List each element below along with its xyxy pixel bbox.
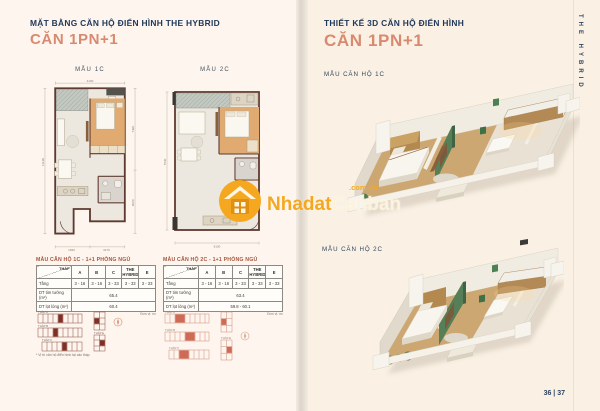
right-page-title: THIẾT KẾ 3D CĂN HỘ ĐIỂN HÌNH [324, 18, 464, 28]
cell-floor: 3 - 16 [199, 279, 216, 289]
plan2-kitchen-top [231, 93, 258, 105]
svg-text:4100: 4100 [87, 79, 94, 83]
floor-plan-1c: 4100 11190 7420 2020 1520 4170 [40, 78, 140, 252]
svg-text:THÁP C: THÁP C [42, 338, 52, 342]
col-header-c: C [232, 266, 249, 279]
table-row: DT tim tường (m²) 65.4 [37, 289, 156, 302]
svg-text:THÁP B: THÁP B [38, 324, 48, 328]
keyplan-note: * Vị trí căn hộ điển hình tại các tháp [36, 353, 90, 357]
cell-floor: 3 - 33 [122, 279, 139, 289]
col-header-a: A [72, 266, 89, 279]
col-header-b: B [215, 266, 232, 279]
watermark-brand-light: Canban [331, 194, 401, 215]
table2-block: MẪU CĂN HỘ 2C - 1+1 PHÒNG NGỦ THÁP A B C… [163, 257, 283, 316]
table-row: DT tim tường (m²) 63.4 [164, 289, 283, 302]
render-3d-2c [352, 234, 564, 396]
svg-text:THÁP E: THÁP E [94, 331, 104, 335]
watermark-house-icon [218, 179, 262, 223]
row-label-gross: DT tim tường (m²) [164, 289, 199, 302]
render2-warm-light [494, 286, 534, 302]
table-header-row: THÁP A B C THE HYBRID E [37, 266, 156, 279]
svg-text:THÁP E: THÁP E [221, 336, 231, 340]
col-header-e: E [266, 266, 283, 279]
row-label-gross: DT tim tường (m²) [37, 289, 72, 302]
svg-text:11190: 11190 [41, 158, 45, 166]
side-vertical-text: THE HYBRID [577, 14, 583, 124]
col-header-a: A [199, 266, 216, 279]
compass-icon [114, 318, 122, 326]
table1-block: MẪU CĂN HỘ 1C - 1+1 PHÒNG NGỦ THÁP A B C… [36, 257, 156, 316]
right-page-subtitle: CĂN 1PN+1 [324, 31, 423, 51]
table2-title: MẪU CĂN HỘ 2C - 1+1 PHÒNG NGỦ [163, 257, 283, 263]
watermark: NhadatCanban .com.vn [218, 176, 398, 236]
compass-icon [241, 332, 249, 340]
plan2-dining [178, 148, 201, 161]
table2-corner-cell: THÁP [164, 266, 199, 279]
svg-text:THÁP A: THÁP A [165, 310, 175, 314]
svg-text:THÁP A: THÁP A [38, 310, 48, 314]
table1: THÁP A B C THE HYBRID E Tầng 3 - 16 3 - … [36, 265, 156, 312]
watermark-domain: .com.vn [349, 183, 377, 192]
watermark-brand-bold: Nhadat [267, 194, 331, 215]
svg-text:THÁP B: THÁP B [165, 328, 175, 332]
plan1-bedroom [90, 98, 125, 145]
col-header-e: E [139, 266, 156, 279]
plan2-pillar-bottom-left [173, 217, 178, 230]
plan1-label: MẪU 1C [55, 67, 125, 73]
plan2-label: MẪU 2C [180, 67, 250, 73]
svg-text:1520: 1520 [68, 248, 75, 252]
col-header-b: B [88, 266, 105, 279]
left-page-subtitle: CĂN 1PN+1 [30, 31, 118, 48]
plan2-bedroom [219, 107, 259, 154]
cell-floor: 3 - 33 [139, 279, 156, 289]
table2: THÁP A B C THE HYBRID E Tầng 3 - 16 3 - … [163, 265, 283, 312]
plan1-balcony [56, 89, 88, 110]
svg-text:7040: 7040 [163, 158, 167, 165]
col-header-c: C [105, 266, 122, 279]
cell-floor: 3 - 33 [249, 279, 266, 289]
keyplan-cluster-1c: THÁP A THÁP B THÁP C THÁP E [36, 310, 146, 352]
left-page-title: MẶT BẰNG CĂN HỘ ĐIỂN HÌNH THE HYBRID [30, 18, 220, 28]
render1-warm-light [498, 122, 542, 140]
cell-floor: 3 - 33 [232, 279, 249, 289]
cell-floor: 3 - 16 [215, 279, 232, 289]
svg-text:8100: 8100 [214, 245, 221, 249]
row-label-floor: Tầng [164, 279, 199, 289]
cell-floor: 3 - 16 [72, 279, 89, 289]
cell-gross-area: 65.4 [72, 289, 156, 302]
col-header-hybrid: THE HYBRID [249, 266, 266, 279]
table1-title: MẪU CĂN HỘ 1C - 1+1 PHÒNG NGỦ [36, 257, 156, 263]
cell-floor: 3 - 33 [266, 279, 283, 289]
page-number: 36 | 37 [505, 390, 565, 397]
brochure-spread: MẶT BẰNG CĂN HỘ ĐIỂN HÌNH THE HYBRID CĂN… [0, 0, 600, 411]
table-row: Tầng 3 - 16 3 - 16 3 - 33 3 - 33 3 - 33 [37, 279, 156, 289]
svg-text:2020: 2020 [131, 199, 135, 206]
table-row: Tầng 3 - 16 3 - 16 3 - 33 3 - 33 3 - 33 [164, 279, 283, 289]
keyplan-cluster-2c: THÁP A THÁP B THÁP C THÁP E [163, 310, 263, 366]
corner-label: THÁP [59, 267, 69, 271]
plan1-bathroom [99, 177, 124, 202]
corner-label: THÁP [186, 267, 196, 271]
svg-text:THÁP C: THÁP C [169, 346, 179, 350]
cell-floor: 3 - 33 [105, 279, 122, 289]
row-label-floor: Tầng [37, 279, 72, 289]
plan1-utility-box [106, 88, 124, 95]
table-header-row: THÁP A B C THE HYBRID E [164, 266, 283, 279]
svg-text:7420: 7420 [131, 125, 135, 132]
table1-corner-cell: THÁP [37, 266, 72, 279]
svg-text:4170: 4170 [103, 248, 110, 252]
plan1-wardrobe [90, 146, 125, 154]
col-header-hybrid: THE HYBRID [122, 266, 139, 279]
watermark-brand: NhadatCanban [267, 195, 401, 214]
cell-floor: 3 - 16 [88, 279, 105, 289]
plan2-balcony [176, 93, 230, 108]
cell-gross-area: 63.4 [199, 289, 283, 302]
plan1-kitchen [57, 186, 88, 195]
